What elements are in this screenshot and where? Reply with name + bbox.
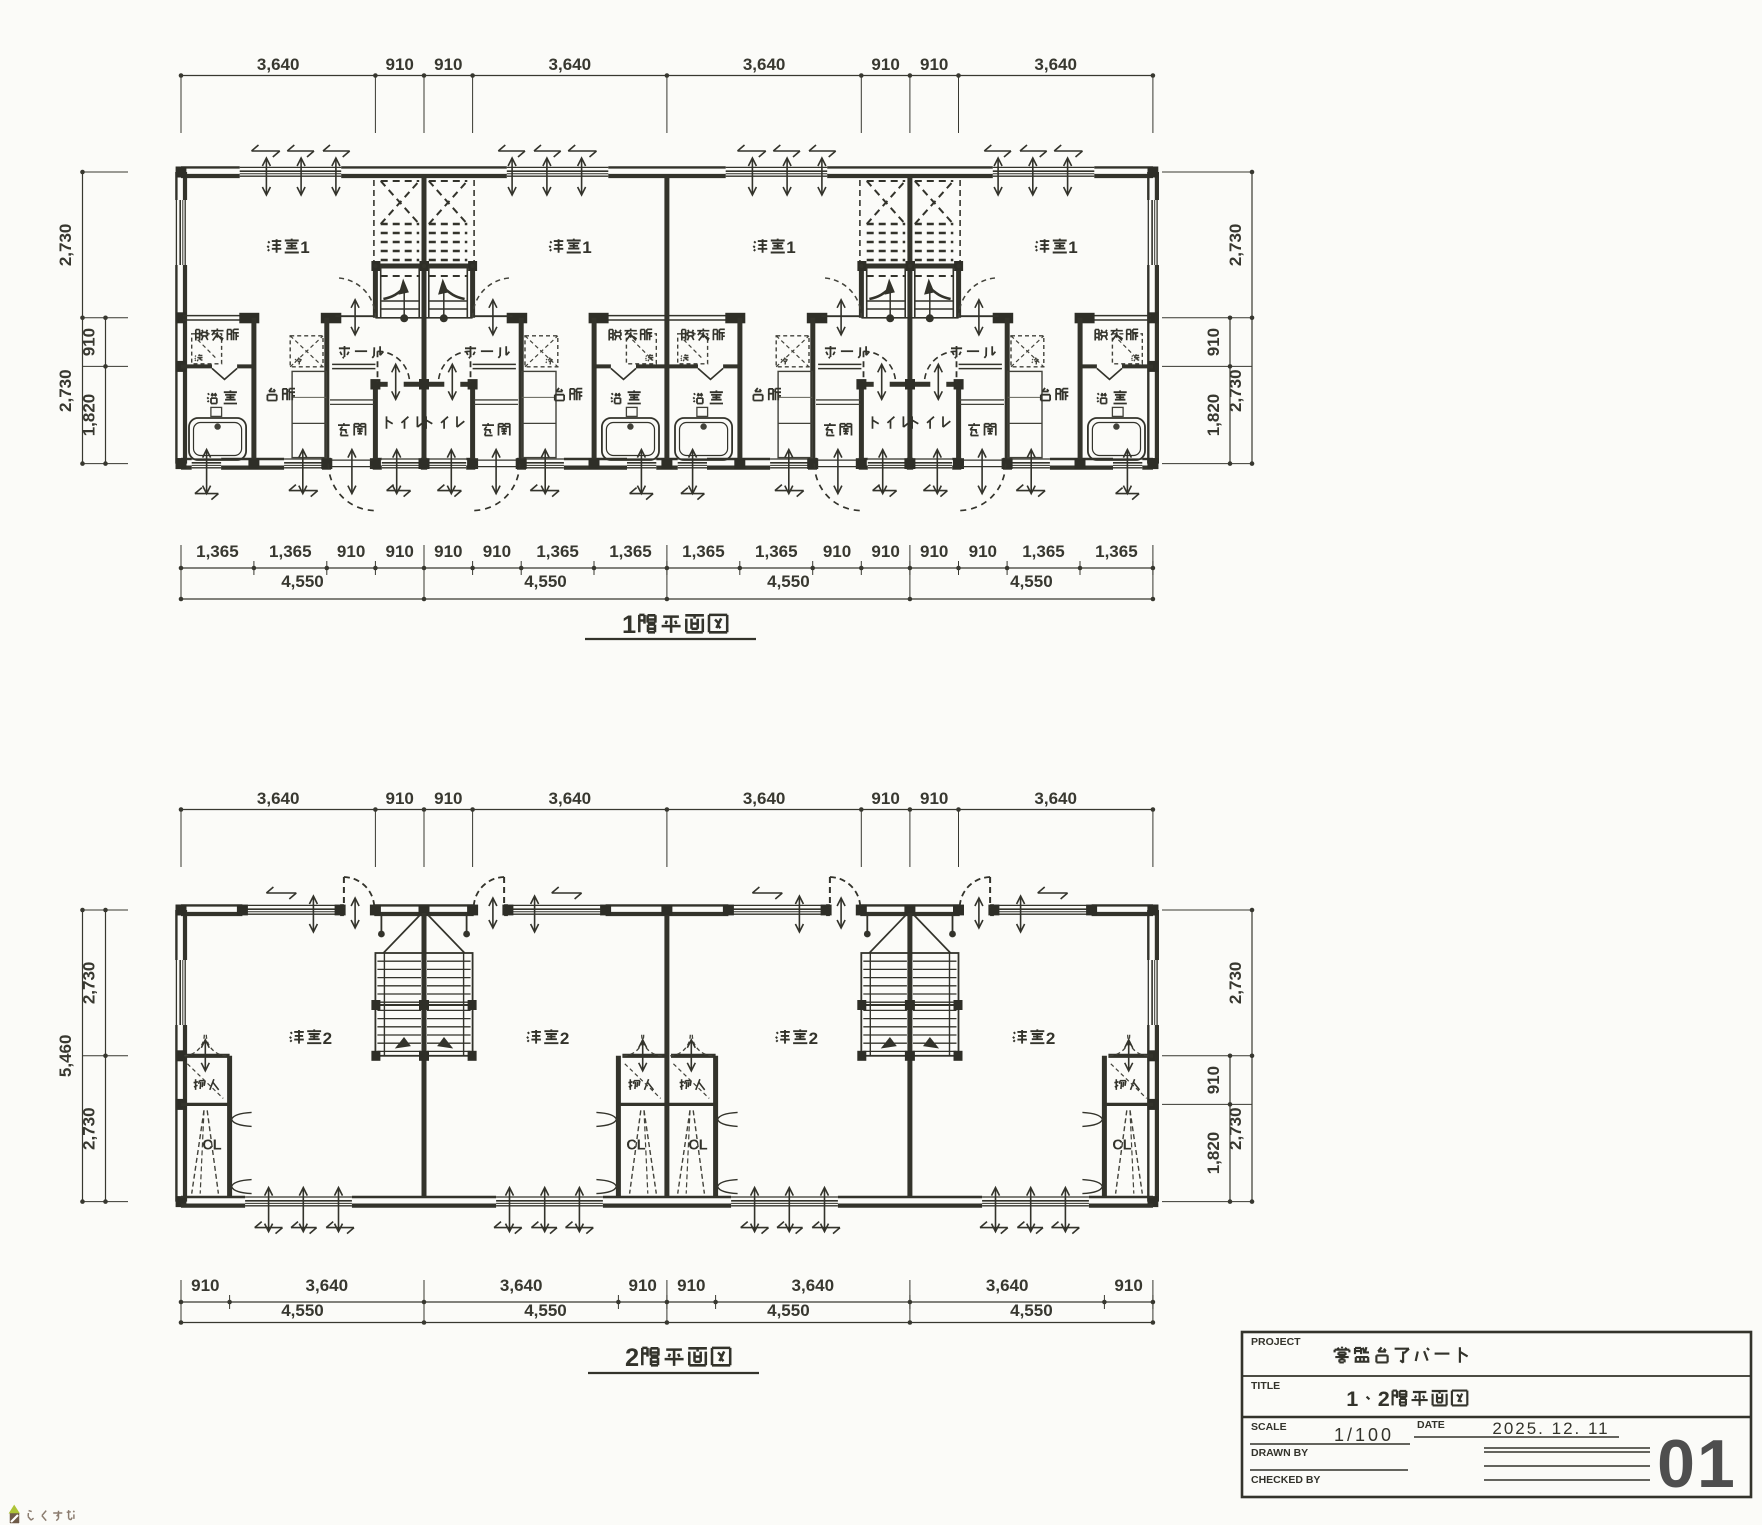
svg-text:1: 1 <box>300 238 309 257</box>
svg-text:1: 1 <box>1346 1386 1358 1411</box>
svg-text:1,365: 1,365 <box>682 542 725 561</box>
svg-text:910: 910 <box>191 1276 219 1295</box>
svg-text:3,640: 3,640 <box>549 55 592 74</box>
svg-text:4,550: 4,550 <box>1010 1301 1053 1320</box>
svg-text:910: 910 <box>386 789 414 808</box>
svg-text:910: 910 <box>920 542 948 561</box>
svg-text:4,550: 4,550 <box>281 1301 324 1320</box>
svg-text:2,730: 2,730 <box>56 369 75 412</box>
svg-text:2: 2 <box>1046 1029 1055 1048</box>
svg-text:3,640: 3,640 <box>986 1276 1029 1295</box>
svg-text:910: 910 <box>629 1276 657 1295</box>
svg-text:1: 1 <box>1068 238 1077 257</box>
svg-text:910: 910 <box>434 55 462 74</box>
svg-text:2: 2 <box>625 1344 639 1372</box>
svg-text:910: 910 <box>871 789 899 808</box>
svg-text:3,640: 3,640 <box>257 789 300 808</box>
svg-text:910: 910 <box>823 542 851 561</box>
svg-text:2,730: 2,730 <box>80 1107 99 1150</box>
svg-text:4,550: 4,550 <box>281 572 324 591</box>
svg-text:5,460: 5,460 <box>56 1035 75 1078</box>
svg-text:910: 910 <box>920 789 948 808</box>
svg-text:1,365: 1,365 <box>269 542 312 561</box>
svg-text:910: 910 <box>337 542 365 561</box>
svg-text:1,365: 1,365 <box>196 542 239 561</box>
svg-text:1: 1 <box>786 238 795 257</box>
svg-text:4,550: 4,550 <box>767 572 810 591</box>
svg-text:3,640: 3,640 <box>306 1276 349 1295</box>
svg-text:2,730: 2,730 <box>1226 369 1245 412</box>
svg-text:2,730: 2,730 <box>56 224 75 267</box>
svg-text:1,365: 1,365 <box>536 542 579 561</box>
svg-text:CHECKED BY: CHECKED BY <box>1251 1474 1320 1486</box>
svg-text:910: 910 <box>1114 1276 1142 1295</box>
svg-text:3,640: 3,640 <box>1034 55 1077 74</box>
svg-text:2,730: 2,730 <box>1226 224 1245 267</box>
svg-text:3,640: 3,640 <box>1034 789 1077 808</box>
svg-text:2,730: 2,730 <box>1226 1107 1245 1150</box>
svg-text:1,820: 1,820 <box>1204 1132 1223 1175</box>
svg-text:1,365: 1,365 <box>1022 542 1065 561</box>
svg-text:1/100: 1/100 <box>1334 1425 1394 1445</box>
svg-text:4,550: 4,550 <box>524 1301 567 1320</box>
svg-text:2: 2 <box>560 1029 569 1048</box>
svg-text:910: 910 <box>386 55 414 74</box>
svg-text:2,730: 2,730 <box>1226 962 1245 1005</box>
svg-text:4,550: 4,550 <box>767 1301 810 1320</box>
svg-text:4,550: 4,550 <box>524 572 567 591</box>
svg-text:2,730: 2,730 <box>80 962 99 1005</box>
svg-text:PROJECT: PROJECT <box>1251 1336 1301 1348</box>
svg-text:910: 910 <box>969 542 997 561</box>
svg-text:2: 2 <box>809 1029 818 1048</box>
svg-text:910: 910 <box>920 55 948 74</box>
svg-text:910: 910 <box>434 542 462 561</box>
svg-text:3,640: 3,640 <box>792 1276 835 1295</box>
svg-text:1: 1 <box>582 238 591 257</box>
svg-text:3,640: 3,640 <box>743 55 786 74</box>
svg-text:DRAWN BY: DRAWN BY <box>1251 1447 1308 1459</box>
svg-text:910: 910 <box>1204 328 1223 356</box>
svg-text:01: 01 <box>1657 1426 1737 1502</box>
svg-text:910: 910 <box>386 542 414 561</box>
svg-text:3,640: 3,640 <box>743 789 786 808</box>
svg-text:2025. 12. 11: 2025. 12. 11 <box>1492 1419 1609 1438</box>
svg-text:DATE: DATE <box>1417 1419 1445 1431</box>
svg-text:SCALE: SCALE <box>1251 1421 1287 1433</box>
svg-text:3,640: 3,640 <box>549 789 592 808</box>
svg-text:1,365: 1,365 <box>755 542 798 561</box>
svg-text:3,640: 3,640 <box>500 1276 543 1295</box>
svg-text:3,640: 3,640 <box>257 55 300 74</box>
svg-text:910: 910 <box>677 1276 705 1295</box>
svg-text:2: 2 <box>1378 1386 1390 1411</box>
svg-text:910: 910 <box>434 789 462 808</box>
svg-text:910: 910 <box>483 542 511 561</box>
svg-text:910: 910 <box>871 542 899 561</box>
svg-text:4,550: 4,550 <box>1010 572 1053 591</box>
svg-text:2: 2 <box>323 1029 332 1048</box>
svg-text:910: 910 <box>1204 1066 1223 1094</box>
svg-text:1,365: 1,365 <box>1095 542 1138 561</box>
svg-text:TITLE: TITLE <box>1251 1380 1280 1392</box>
svg-text:1,820: 1,820 <box>1204 394 1223 437</box>
svg-text:910: 910 <box>80 328 99 356</box>
svg-text:1,820: 1,820 <box>80 394 99 437</box>
svg-text:1,365: 1,365 <box>609 542 652 561</box>
svg-text:1: 1 <box>622 611 636 639</box>
svg-text:910: 910 <box>871 55 899 74</box>
